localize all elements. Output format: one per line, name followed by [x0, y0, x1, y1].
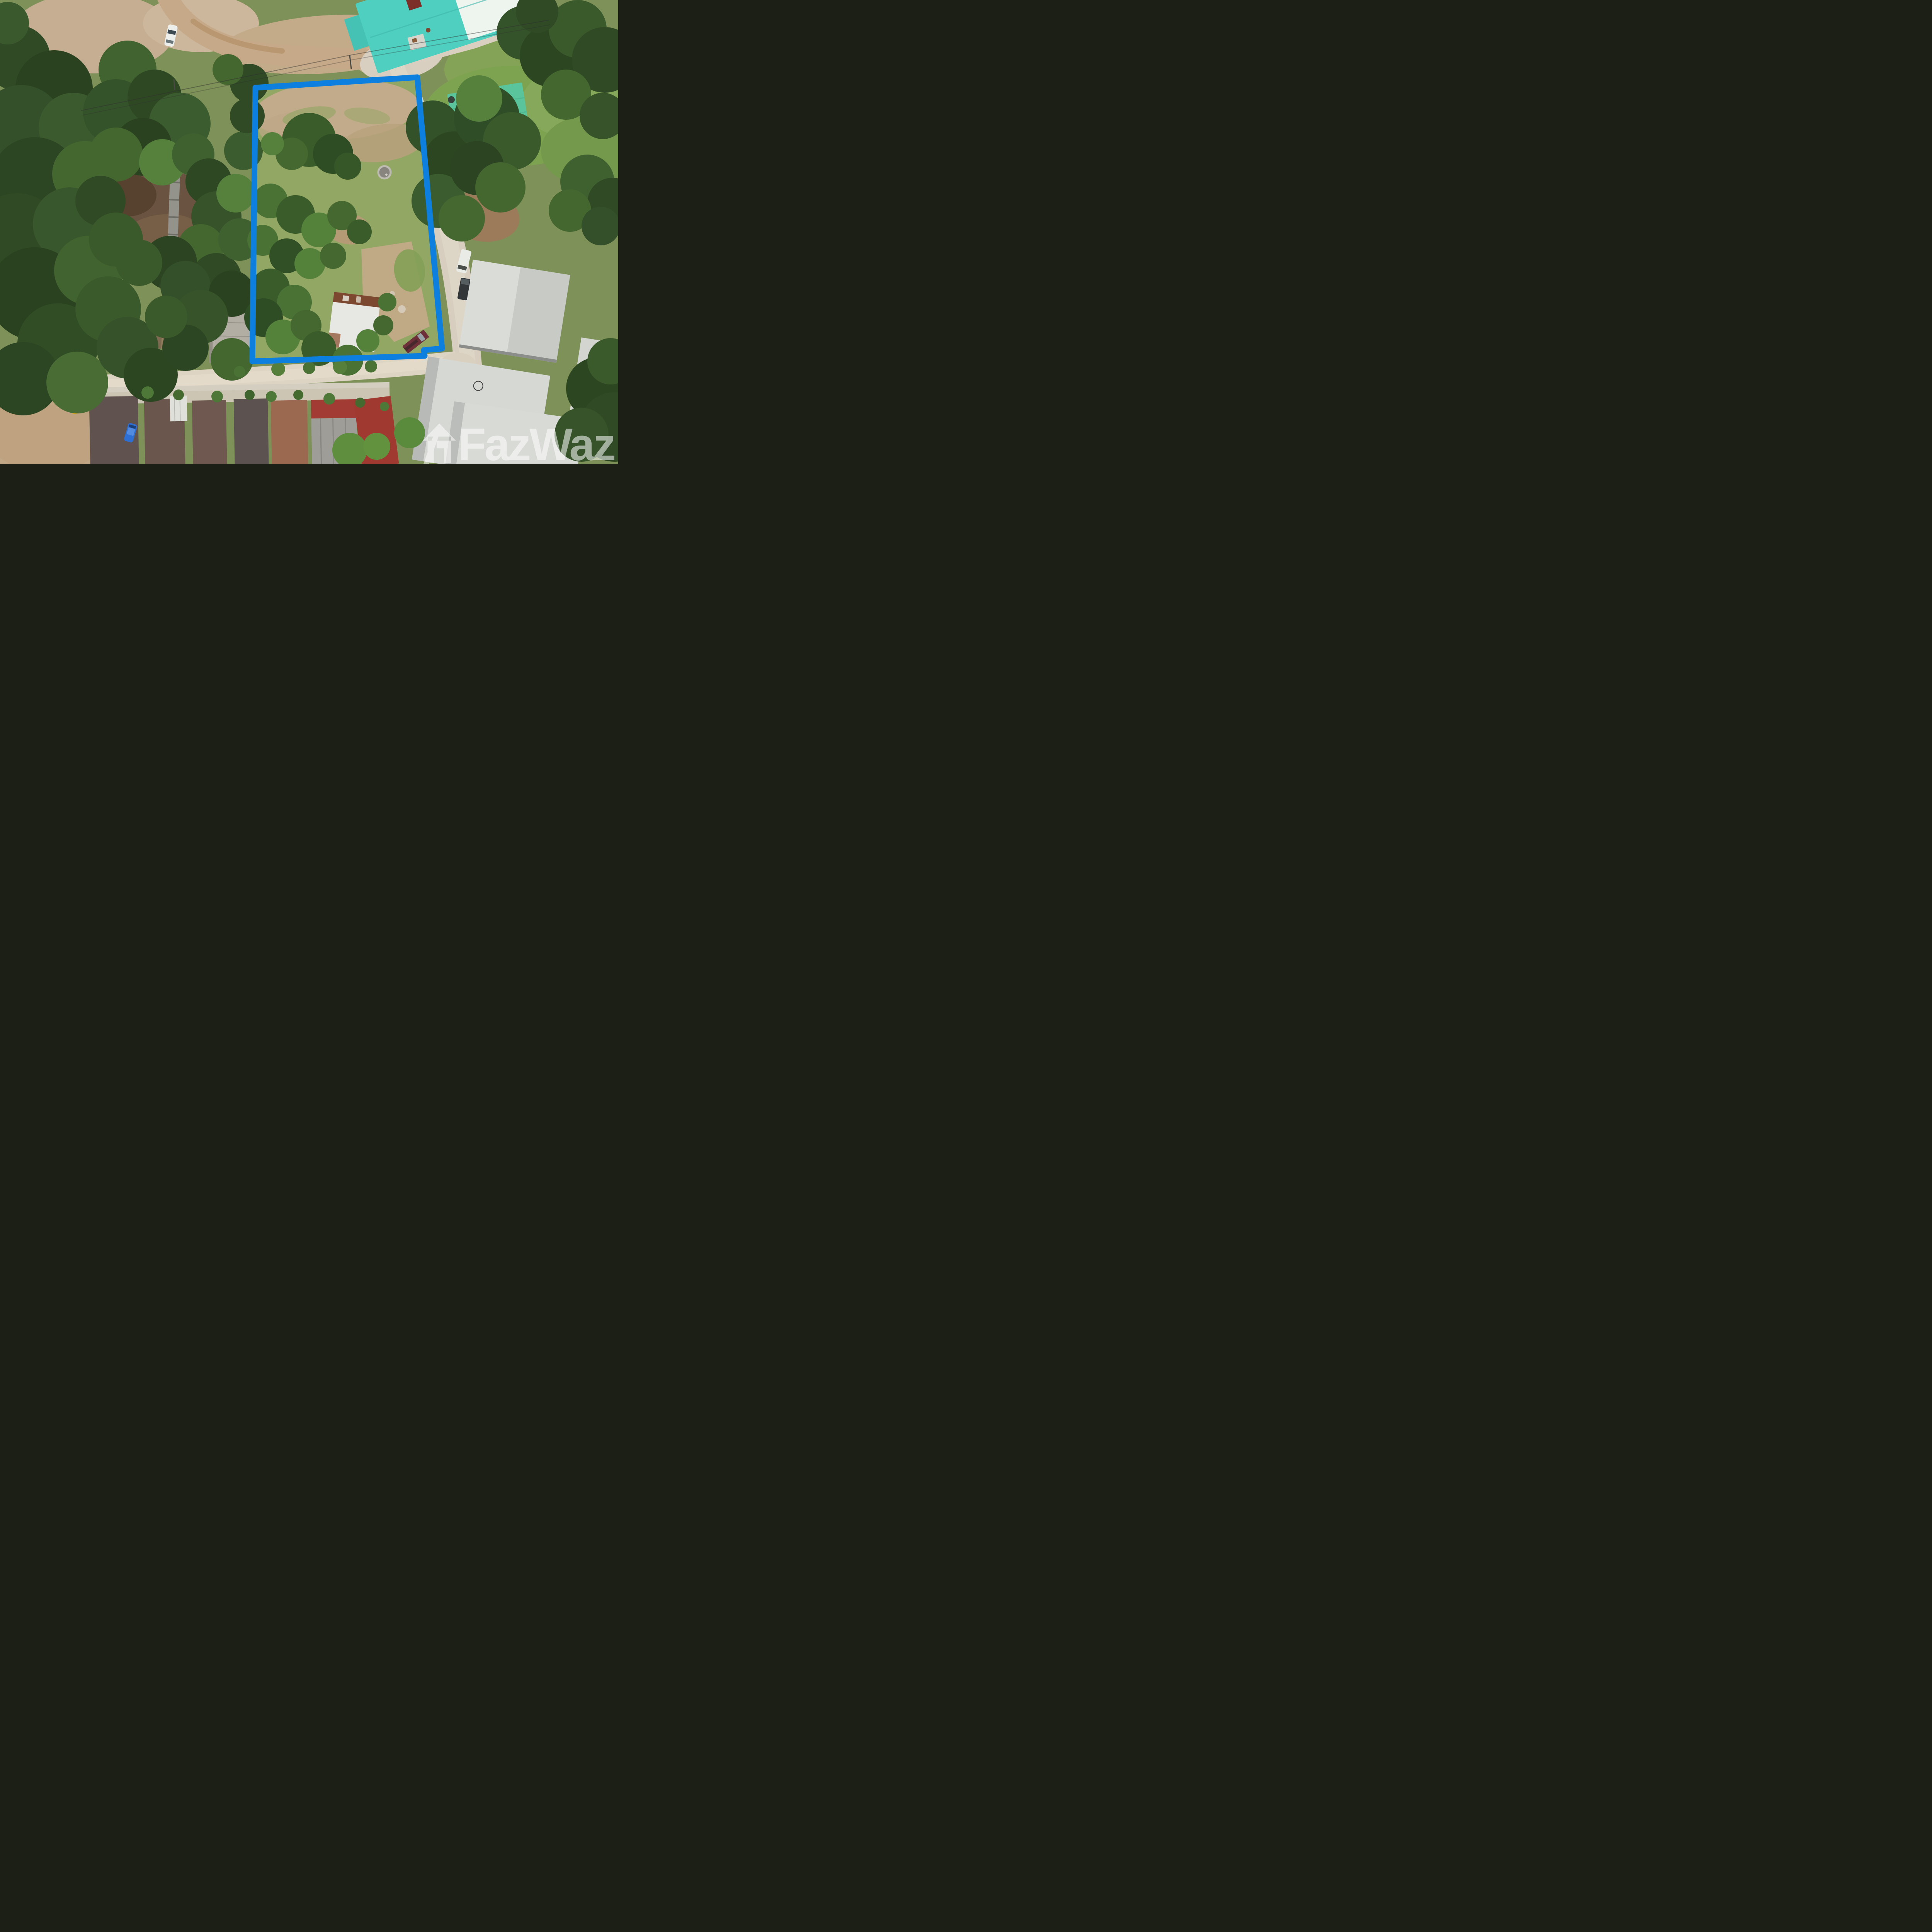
plot-shed-rust-blotch — [342, 295, 349, 301]
tree-canopy — [145, 296, 187, 338]
plant-pot — [426, 28, 430, 32]
hedge-bush — [293, 390, 303, 400]
hedge-bush — [173, 389, 184, 400]
townhouse-roof-3 — [192, 400, 227, 464]
hedge-bush — [266, 391, 277, 402]
canopy-rib — [174, 396, 175, 421]
plot-bush — [347, 219, 372, 244]
townhouse-roof-4 — [234, 398, 269, 464]
concrete-water-tank — [378, 166, 391, 179]
plot-bush — [378, 293, 396, 311]
plot-bush — [356, 329, 379, 352]
hedge-bush — [245, 390, 255, 400]
tree-canopy — [211, 338, 253, 381]
water-tank-dark — [448, 96, 455, 103]
aerial-photo: FazWaz — [0, 0, 618, 464]
power-pole — [174, 79, 175, 90]
hedge-bush — [355, 398, 365, 408]
tree-canopy — [116, 240, 162, 286]
tree-in-plot — [334, 153, 361, 180]
hedge-bush — [380, 402, 389, 411]
hedge-bush — [323, 393, 335, 405]
palm-tree — [456, 75, 502, 122]
townhouse-roof-5 — [271, 400, 308, 464]
tank-glint — [385, 173, 388, 176]
aerial-scene-svg — [0, 0, 618, 464]
tree-canopy — [475, 162, 526, 213]
roadside-bush — [333, 360, 347, 374]
plot-shed-rust-blotch — [356, 296, 361, 303]
hedge-bush — [211, 391, 223, 402]
palm-tree — [216, 174, 255, 213]
roadside-bush — [234, 366, 245, 378]
tree-canopy — [46, 352, 108, 413]
tree-canopy — [89, 128, 143, 182]
tree-in-plot — [261, 132, 284, 155]
tree-canopy — [439, 195, 485, 241]
tree-canopy — [230, 99, 265, 133]
roadside-bush — [303, 362, 315, 374]
rubble-stone — [398, 305, 406, 313]
grass-patch-bright — [394, 417, 425, 448]
roadside-bush — [271, 362, 285, 376]
roadside-bush — [365, 360, 377, 372]
hedge-bush — [141, 386, 154, 399]
plot-bush — [320, 243, 346, 269]
tree-canopy — [554, 408, 609, 462]
grass-patch-bright — [363, 433, 390, 460]
plot-bush — [373, 315, 393, 335]
